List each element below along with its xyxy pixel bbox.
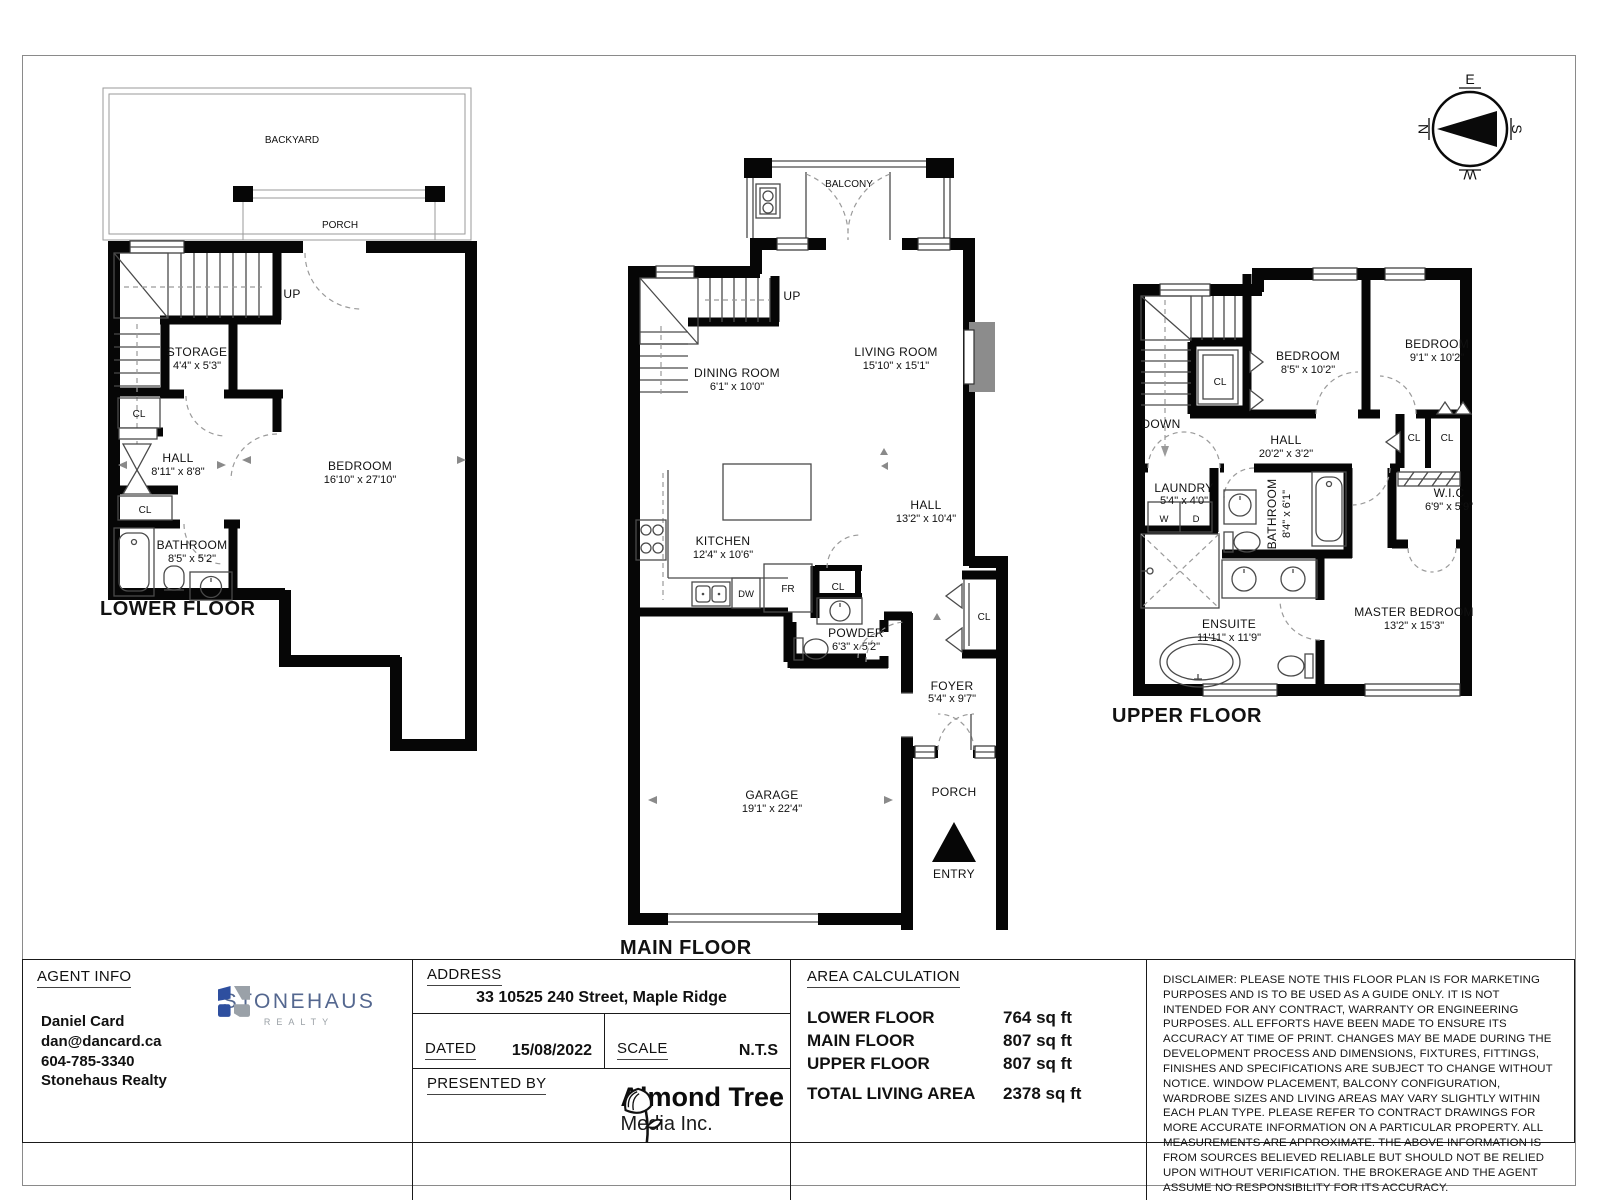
closet-label: CL — [978, 612, 991, 623]
room-dims-dining: 6'1" x 10'0" — [710, 381, 764, 393]
area-row-value: 764 sq ft — [1003, 1008, 1072, 1028]
room-dims-living: 15'10" x 15'1" — [863, 360, 930, 372]
room-dims-hall-main: 13'2" x 10'4" — [896, 513, 956, 525]
area-total-row: TOTAL LIVING AREA 2378 sq ft — [807, 1084, 1130, 1104]
room-dims-master: 13'2" x 15'3" — [1384, 620, 1444, 632]
closet-label: CL — [1408, 433, 1421, 444]
wic-wardrobe — [1398, 472, 1460, 486]
area-row-label: LOWER FLOOR — [807, 1008, 1003, 1028]
floor-plan-upper: DOWN CL CL CL W D — [1112, 268, 1474, 727]
almond-tree-logo: Almond Tree Media Inc. — [620, 1084, 784, 1136]
agent-details: Daniel Card dan@dancard.ca 604-785-3340 … — [41, 1012, 167, 1091]
dated-scale-row: DATED 15/08/2022 SCALE N.T.S — [413, 1014, 790, 1069]
agent-email: dan@dancard.ca — [41, 1032, 167, 1052]
room-dims-hall-lower: 8'11" x 8'8" — [151, 466, 204, 478]
room-label-living: LIVING ROOM — [854, 345, 937, 359]
room-dims-foyer: 5'4" x 9'7" — [928, 693, 976, 705]
room-dims-bedroom1: 8'5" x 10'2" — [1281, 364, 1335, 376]
stair-closet-upper: CL — [1198, 350, 1263, 410]
room-dims-bathroom-lower: 8'5" x 5'2" — [168, 553, 216, 565]
room-dims-ensuite: 11'11" x 11'9" — [1197, 632, 1261, 644]
floor-plan-lower: BACKYARD PORCH UP CL — [100, 88, 477, 751]
room-label-dining: DINING ROOM — [694, 366, 780, 380]
presented-by-label: PRESENTED BY — [427, 1075, 546, 1095]
scale-label: SCALE — [617, 1040, 668, 1060]
room-dims-bedroom-lower: 16'10" x 27'10" — [324, 474, 397, 486]
label-balcony: BALCONY — [825, 179, 873, 190]
room-dims-hall-upper: 20'2" x 3'2" — [1259, 448, 1313, 460]
room-dims-powder: 6'3" x 5'2" — [832, 641, 880, 653]
address-value: 33 10525 240 Street, Maple Ridge — [427, 989, 776, 1007]
room-label-hall-main: HALL — [910, 498, 941, 512]
toilet-lower — [164, 566, 184, 590]
agent-company: Stonehaus Realty — [41, 1071, 167, 1091]
label-porch-lower: PORCH — [322, 220, 358, 231]
room-label-bedroom-lower: BEDROOM — [328, 459, 392, 473]
room-label-wic: W.I.C — [1434, 486, 1465, 500]
room-dims-bedroom2: 9'1" x 10'2" — [1410, 352, 1464, 364]
dated-value: 15/08/2022 — [512, 1042, 592, 1060]
room-label-kitchen: KITCHEN — [696, 534, 751, 548]
room-label-bedroom1: BEDROOM — [1276, 349, 1340, 363]
area-row-main: MAIN FLOOR 807 sq ft — [807, 1031, 1130, 1051]
porch-post — [425, 186, 445, 202]
stonehaus-tagline: REALTY — [214, 1017, 384, 1027]
agent-info-heading: AGENT INFO — [37, 968, 131, 988]
room-dims-wic: 6'9" x 5'9" — [1425, 501, 1473, 513]
dated-label: DATED — [425, 1040, 476, 1060]
closet-label: CL — [832, 582, 845, 593]
area-total-label: TOTAL LIVING AREA — [807, 1084, 1003, 1104]
room-dims-laundry: 5'4" x 4'0" — [1160, 495, 1208, 507]
area-row-label: MAIN FLOOR — [807, 1031, 1003, 1051]
floor-title-lower: LOWER FLOOR — [100, 598, 256, 620]
porch-post — [233, 186, 253, 202]
presented-by-row: PRESENTED BY Almond Tree Media Inc. — [413, 1069, 790, 1142]
agent-phone: 604-785-3340 — [41, 1052, 167, 1072]
room-dims-storage: 4'4" x 5'3" — [173, 360, 221, 372]
room-label-foyer: FOYER — [931, 679, 974, 693]
room-label-hall-upper: HALL — [1270, 433, 1301, 447]
floor-title-main: MAIN FLOOR — [620, 937, 752, 958]
scale-value: N.T.S — [739, 1042, 778, 1060]
foyer-closet: CL — [946, 579, 991, 652]
floor-plans-canvas: BACKYARD PORCH UP CL — [0, 0, 1600, 958]
label-entry: ENTRY — [933, 867, 975, 881]
stonehaus-logo-icon — [214, 986, 254, 1018]
floor-plan-sheet: BACKYARD PORCH UP CL — [0, 0, 1600, 1200]
compass-e: E — [1465, 71, 1474, 87]
floor-plan-main: BALCONY UP — [620, 158, 1008, 958]
scale-cell: SCALE N.T.S — [604, 1014, 790, 1068]
label-fr: FR — [781, 584, 794, 595]
address-dated-presented-cell: ADDRESS 33 10525 240 Street, Maple Ridge… — [413, 960, 791, 1200]
area-total-value: 2378 sq ft — [1003, 1084, 1081, 1104]
label-up-lower: UP — [283, 287, 300, 301]
bbq-icon — [756, 184, 780, 218]
area-row-value: 807 sq ft — [1003, 1031, 1072, 1051]
area-calculation-cell: AREA CALCULATION LOWER FLOOR 764 sq ft M… — [791, 960, 1147, 1200]
room-label-bathroom-upper: BATHROOM — [1265, 479, 1279, 550]
label-dryer: D — [1193, 514, 1200, 525]
room-label-hall-lower: HALL — [162, 451, 193, 465]
closet-label: CL — [139, 505, 152, 516]
area-rows: LOWER FLOOR 764 sq ft MAIN FLOOR 807 sq … — [807, 1008, 1130, 1104]
closet-label: CL — [1214, 377, 1227, 388]
room-label-bathroom-lower: BATHROOM — [157, 538, 228, 552]
area-row-label: UPPER FLOOR — [807, 1054, 1003, 1074]
title-block: AGENT INFO Daniel Card dan@dancard.ca 60… — [22, 959, 1575, 1143]
room-label-garage: GARAGE — [745, 788, 798, 802]
label-down: DOWN — [1141, 417, 1180, 431]
dated-cell: DATED 15/08/2022 — [413, 1014, 604, 1068]
label-up-main: UP — [783, 289, 800, 303]
room-dims-bathroom-upper: 8'4" x 6'1" — [1281, 490, 1293, 538]
compass-icon: E N S W — [1415, 71, 1525, 183]
area-row-value: 807 sq ft — [1003, 1054, 1072, 1074]
area-heading: AREA CALCULATION — [807, 968, 960, 988]
room-label-laundry: LAUNDRY — [1154, 481, 1213, 495]
agent-info-cell: AGENT INFO Daniel Card dan@dancard.ca 60… — [23, 960, 413, 1200]
agent-name: Daniel Card — [41, 1012, 167, 1032]
room-label-powder: POWDER — [828, 626, 884, 640]
area-row-upper: UPPER FLOOR 807 sq ft — [807, 1054, 1130, 1074]
balcony: BALCONY — [744, 158, 954, 240]
room-label-storage: STORAGE — [167, 345, 228, 359]
room-dims-garage: 19'1" x 22'4" — [742, 803, 802, 815]
closet-1-lower: CL — [118, 398, 160, 470]
area-row-lower: LOWER FLOOR 764 sq ft — [807, 1008, 1130, 1028]
kitchen-island — [723, 464, 811, 520]
disclaimer-cell: DISCLAIMER: PLEASE NOTE THIS FLOOR PLAN … — [1147, 960, 1574, 1200]
stonehaus-logo: STONEHAUS REALTY — [214, 986, 384, 1027]
almond-tree-logo-icon — [620, 1084, 666, 1146]
room-label-bedroom2: BEDROOM — [1405, 337, 1469, 351]
floor-title-upper: UPPER FLOOR — [1112, 705, 1262, 727]
room-label-ensuite: ENSUITE — [1202, 617, 1256, 631]
closet-label: CL — [133, 409, 146, 420]
room-dims-kitchen: 12'4" x 10'6" — [693, 549, 753, 561]
label-dw: DW — [738, 589, 754, 600]
label-washer: W — [1160, 514, 1169, 525]
label-backyard: BACKYARD — [265, 135, 319, 146]
address-heading: ADDRESS — [427, 966, 502, 986]
address-row: ADDRESS 33 10525 240 Street, Maple Ridge — [413, 960, 790, 1014]
entry-arrow — [932, 822, 976, 862]
disclaimer-text: DISCLAIMER: PLEASE NOTE THIS FLOOR PLAN … — [1163, 974, 1552, 1194]
closet-label: CL — [1441, 433, 1454, 444]
label-porch-main: PORCH — [932, 785, 977, 799]
room-label-master: MASTER BEDROOM — [1354, 605, 1474, 619]
